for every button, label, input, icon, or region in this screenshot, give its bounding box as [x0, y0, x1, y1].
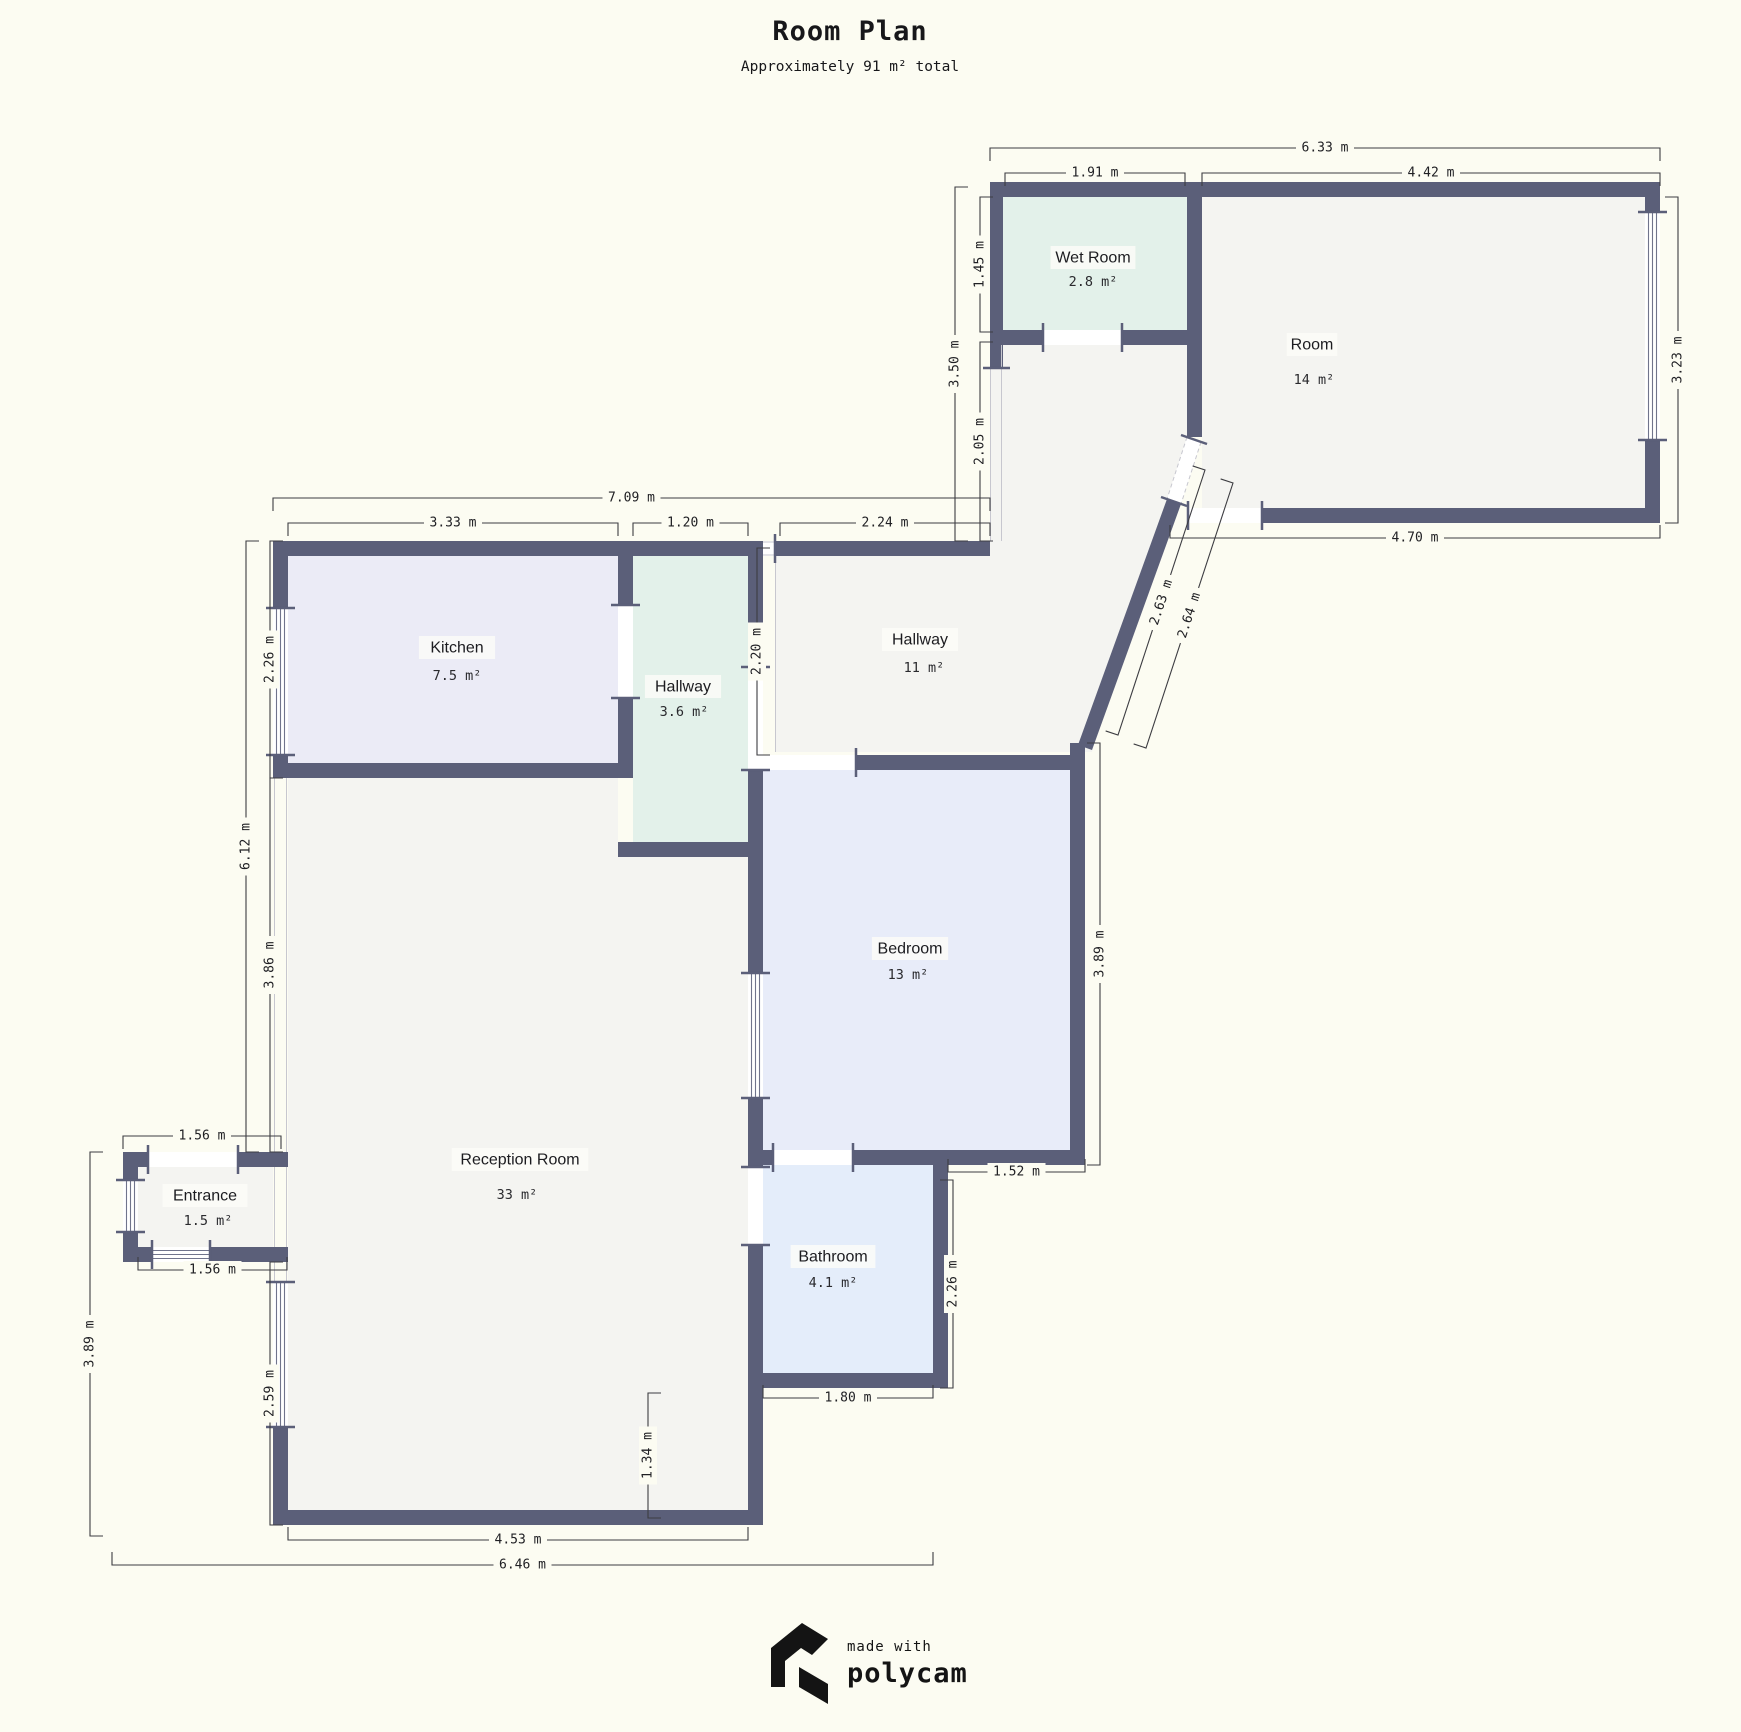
- dimension-text: 6.46 m: [499, 1558, 546, 1573]
- dimension-text: 3.89 m: [83, 1320, 98, 1367]
- door-wet-room: [1043, 330, 1122, 345]
- dimension-text: 4.53 m: [495, 1533, 542, 1548]
- dimension-text: 4.70 m: [1392, 531, 1439, 546]
- dimension-label: 2.59 m: [261, 1365, 279, 1423]
- dimension-label: 3.23 m: [1669, 331, 1687, 389]
- dimension-label: 2.26 m: [944, 1255, 962, 1313]
- door-hallway-bedroom: [763, 755, 856, 770]
- dimension-label: 3.89 m: [1091, 925, 1109, 983]
- dimension-text: 2.05 m: [973, 418, 988, 465]
- room-label-wet-room: Wet Room: [1055, 250, 1130, 267]
- door-reception-bathroom: [748, 1167, 763, 1245]
- brand-text: polycam: [847, 1658, 968, 1689]
- dimension-text: 2.24 m: [862, 516, 909, 531]
- dimension-label: 1.80 m: [819, 1389, 877, 1407]
- dimension-label: 7.09 m: [603, 489, 661, 507]
- dimension-label: 3.50 m: [946, 335, 964, 393]
- room-area-hallway: 3.6 m²: [660, 704, 709, 720]
- dimension-label: 2.20 m: [748, 623, 766, 681]
- dimension-text: 2.20 m: [750, 628, 765, 675]
- floor-kitchen: [288, 556, 618, 763]
- dimension-label: 1.45 m: [971, 236, 989, 294]
- dimension-label: 2.26 m: [261, 631, 279, 689]
- dimension-text: 1.56 m: [189, 1263, 236, 1278]
- room-label-bedroom: Bedroom: [878, 941, 943, 958]
- floors: [138, 197, 1645, 1510]
- dimension-text: 2.26 m: [263, 636, 278, 683]
- dimension-label: 3.33 m: [424, 514, 482, 532]
- dimension-text: 1.34 m: [641, 1432, 656, 1479]
- dimension-text: 3.23 m: [1671, 336, 1686, 383]
- dimension-text: 1.52 m: [993, 1165, 1040, 1180]
- dimension-label: 2.64 m: [1172, 585, 1207, 646]
- floor-bathroom: [763, 1165, 933, 1373]
- dimension-label: 2.05 m: [971, 413, 989, 471]
- dimension-text: 3.89 m: [1093, 930, 1108, 977]
- dimension-text: 4.42 m: [1408, 166, 1455, 181]
- dimension-text: 1.45 m: [973, 241, 988, 288]
- dimension-label: 1.91 m: [1066, 164, 1124, 182]
- dimension-text: 2.26 m: [946, 1260, 961, 1307]
- dimension-text: 1.91 m: [1072, 166, 1119, 181]
- dimension-text: 3.86 m: [263, 941, 278, 988]
- room-area-entrance: 1.5 m²: [184, 1213, 233, 1229]
- room-area-room: 14 m²: [1294, 372, 1335, 388]
- room-label-hallway: Hallway: [892, 632, 948, 649]
- room-area-hallway: 11 m²: [904, 660, 945, 676]
- polycam-logo-icon: [769, 1622, 829, 1706]
- dimension-text: 6.12 m: [239, 823, 254, 870]
- dimension-text: 1.56 m: [179, 1129, 226, 1144]
- dimension-text: 6.33 m: [1302, 141, 1349, 156]
- dimension-label: 1.52 m: [988, 1163, 1046, 1181]
- floor-plan: 6.33 m1.91 m4.42 m3.23 m4.70 m1.45 m3.50…: [0, 0, 1741, 1728]
- dimension-label: 3.89 m: [81, 1315, 99, 1373]
- dimension-text: 3.33 m: [430, 516, 477, 531]
- room-area-kitchen: 7.5 m²: [433, 668, 482, 684]
- dimension-label: 6.46 m: [494, 1556, 552, 1574]
- title-block: Room Plan Approximately 91 m² total: [0, 0, 1700, 75]
- room-area-bedroom: 13 m²: [888, 967, 929, 983]
- page-title: Room Plan: [0, 16, 1700, 47]
- dimension-label: 3.86 m: [261, 936, 279, 994]
- room-label-entrance: Entrance: [173, 1188, 237, 1205]
- door-kitchen-hallway: [618, 605, 633, 698]
- dimension-label: 1.56 m: [173, 1127, 231, 1145]
- room-area-wet-room: 2.8 m²: [1069, 274, 1118, 290]
- door-entrance: [148, 1152, 238, 1167]
- room-label-room: Room: [1291, 337, 1334, 354]
- dimension-label: 4.42 m: [1402, 164, 1460, 182]
- dimension-text: 1.80 m: [825, 1391, 872, 1406]
- dimension-text: 7.09 m: [608, 491, 655, 506]
- door-room: [1188, 508, 1262, 523]
- room-area-reception-room: 33 m²: [497, 1187, 538, 1203]
- room-label-kitchen: Kitchen: [430, 640, 483, 657]
- room-label-bathroom: Bathroom: [798, 1249, 867, 1266]
- room-label-hallway: Hallway: [655, 679, 711, 696]
- dimension-label: 1.56 m: [184, 1261, 242, 1279]
- dimension-label: 4.70 m: [1386, 529, 1444, 547]
- dimension-text: 1.20 m: [667, 516, 714, 531]
- made-with-text: made with: [847, 1639, 968, 1655]
- floor-hallway-3-6: [633, 556, 748, 842]
- floor-room: [1202, 197, 1645, 508]
- page-subtitle: Approximately 91 m² total: [0, 59, 1700, 75]
- dimension-label: 6.12 m: [237, 818, 255, 876]
- dimension-text: 2.64 m: [1175, 591, 1204, 640]
- dimension-label: 1.34 m: [639, 1427, 657, 1485]
- dimension-label: 2.24 m: [856, 514, 914, 532]
- dimension-label: 4.53 m: [489, 1531, 547, 1549]
- dimension-text: 3.50 m: [948, 340, 963, 387]
- room-area-bathroom: 4.1 m²: [809, 1275, 858, 1291]
- dimension-text: 2.59 m: [263, 1370, 278, 1417]
- polycam-footer: made with polycam: [769, 1622, 968, 1706]
- dimension-label: 1.20 m: [662, 514, 720, 532]
- door-bedroom-bathroom: [773, 1150, 853, 1165]
- room-label-reception-room: Reception Room: [460, 1152, 579, 1169]
- floor-reception-room: [288, 778, 748, 1510]
- dimension-label: 6.33 m: [1296, 139, 1354, 157]
